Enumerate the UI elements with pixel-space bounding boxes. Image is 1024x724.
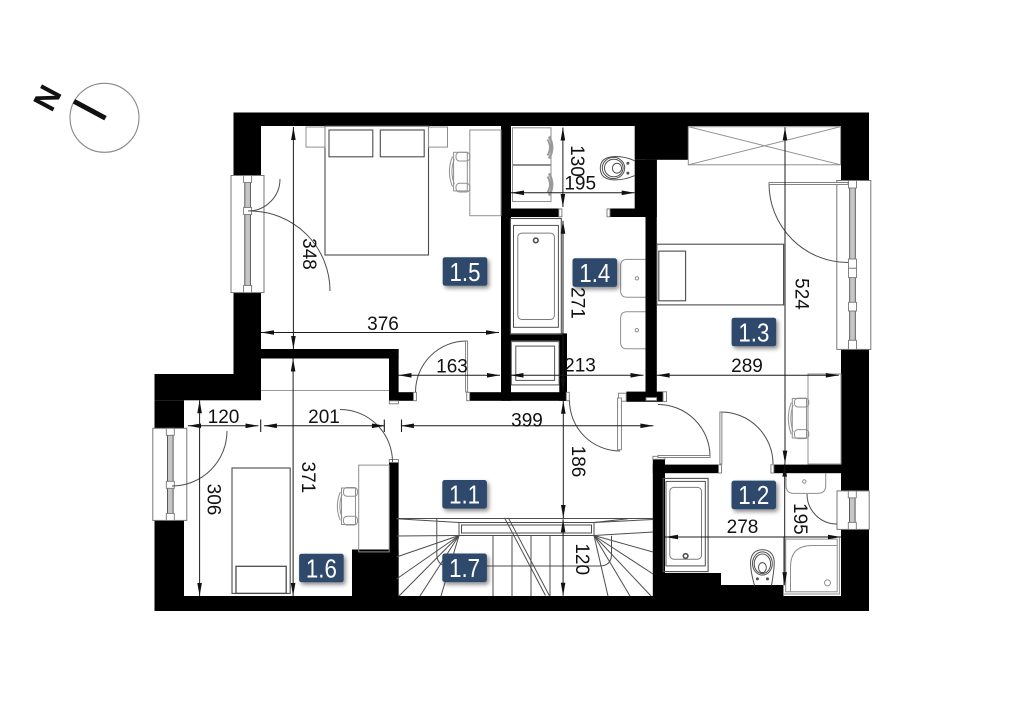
svg-text:271: 271 [566, 287, 587, 319]
svg-text:371: 371 [297, 462, 318, 494]
svg-text:163: 163 [436, 357, 468, 378]
svg-text:1.1: 1.1 [449, 480, 480, 510]
svg-text:1.6: 1.6 [306, 553, 337, 583]
svg-text:120: 120 [571, 543, 592, 575]
svg-text:186: 186 [567, 446, 588, 478]
svg-text:1.2: 1.2 [738, 480, 769, 510]
svg-text:1.3: 1.3 [738, 317, 769, 347]
svg-text:1.7: 1.7 [449, 553, 480, 583]
svg-text:524: 524 [791, 278, 812, 310]
svg-text:289: 289 [731, 356, 763, 377]
svg-text:278: 278 [727, 517, 759, 538]
svg-text:130: 130 [566, 145, 587, 177]
svg-text:201: 201 [308, 407, 340, 428]
svg-text:376: 376 [367, 314, 399, 335]
svg-text:195: 195 [789, 503, 810, 535]
svg-text:1.4: 1.4 [579, 258, 610, 288]
svg-text:120: 120 [208, 407, 240, 428]
svg-text:348: 348 [298, 238, 319, 270]
svg-text:213: 213 [564, 356, 596, 377]
svg-text:306: 306 [202, 484, 223, 516]
svg-text:399: 399 [511, 411, 543, 432]
svg-text:1.5: 1.5 [450, 257, 481, 287]
